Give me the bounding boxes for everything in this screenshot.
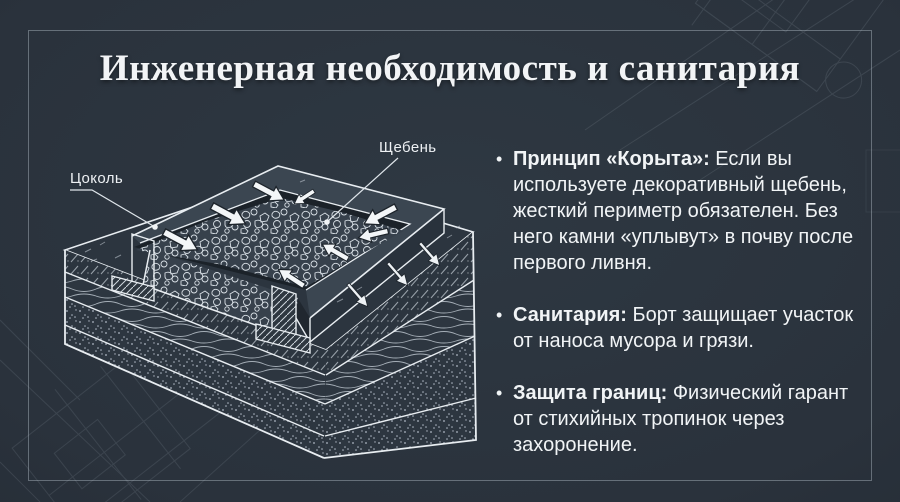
bullet-item-border-protection: •Защита границ: Физический гарант от сти… (496, 380, 854, 458)
foundation-diagram: Цоколь Щебень (0, 0, 500, 502)
bullet-item-trough-principle: •Принцип «Корыта»: Если вы используете д… (496, 146, 854, 276)
bullet-lead: Защита границ: (513, 382, 667, 404)
plinth-leader-dot (152, 224, 158, 230)
bullet-marker: • (496, 146, 502, 172)
label-plinth: Цоколь (70, 170, 123, 187)
bullet-list: •Принцип «Корыта»: Если вы используете д… (496, 146, 854, 484)
bullet-marker: • (496, 380, 502, 406)
gravel-leader-dot (324, 219, 330, 225)
bullet-lead: Санитария: (513, 304, 627, 326)
bullet-marker: • (496, 302, 502, 328)
callout-plinth: Цоколь (70, 170, 158, 230)
label-gravel: Щебень (379, 139, 437, 156)
bullet-lead: Принцип «Корыта»: (513, 148, 710, 170)
bullet-item-sanitation: •Санитария: Борт защищает участок от нан… (496, 302, 854, 354)
